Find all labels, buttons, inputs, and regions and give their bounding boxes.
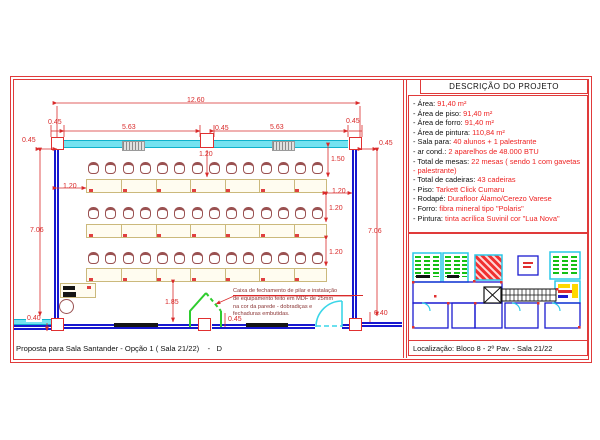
chair-symbol — [243, 252, 254, 264]
column — [198, 318, 211, 331]
furniture-code — [226, 189, 230, 192]
presenter-chair — [59, 299, 74, 314]
chair-symbol — [88, 162, 99, 174]
chair-symbol — [226, 252, 237, 264]
dimension-label: 0.45 — [215, 125, 229, 132]
cad-drawing-sheet: { "sheet": { "title_block": "Proposta pa… — [0, 0, 600, 440]
chair-symbol — [174, 207, 185, 219]
column — [200, 133, 214, 148]
dimension-label: 0.45 — [22, 137, 36, 144]
furniture-code — [87, 286, 91, 289]
description-item: - Área de pintura: 110,84 m² — [413, 128, 583, 137]
dimension-label: 1.20 — [329, 249, 343, 256]
description-item: - Área de forro: 91,40 m² — [413, 118, 583, 127]
chair-symbol — [261, 252, 272, 264]
chair-symbol — [209, 207, 220, 219]
chair-symbol — [312, 252, 323, 264]
description-header: DESCRIÇÃO DO PROJETO — [420, 79, 588, 94]
furniture-code — [261, 278, 265, 281]
furniture-code — [192, 189, 196, 192]
dimension-label: 1.50 — [331, 156, 345, 163]
sheet-title: Proposta para Sala Santander - Opção 1 (… — [16, 344, 222, 353]
chair-symbol — [209, 252, 220, 264]
chair-symbol — [88, 207, 99, 219]
dimension-label: 0.40 — [26, 315, 42, 322]
chair-symbol — [157, 207, 168, 219]
dimension-label: 0.45 — [346, 118, 360, 125]
chair-symbol — [209, 162, 220, 174]
chair-symbol — [243, 207, 254, 219]
furniture-code — [261, 234, 265, 237]
furniture-code — [89, 278, 93, 281]
description-item: - ar cond.: 2 aparelhos de 48.000 BTU — [413, 147, 583, 156]
dimension-label: 0.45 — [48, 119, 62, 126]
adjacent-wall — [14, 325, 51, 330]
column — [349, 137, 362, 150]
equipment-icon — [63, 292, 76, 297]
wall-board — [246, 323, 288, 327]
column — [349, 318, 362, 331]
description-item: - Total de cadeiras: 43 cadeiras — [413, 175, 583, 184]
panel-divider — [406, 79, 407, 358]
dimension-label: 1.20 — [329, 205, 343, 212]
chair-symbol — [295, 252, 306, 264]
furniture-code — [89, 234, 93, 237]
chair-symbol — [192, 207, 203, 219]
description-item: - Rodapé: Durafloor Álamo/Cerezo Varese — [413, 194, 583, 203]
chair-symbol — [157, 162, 168, 174]
furniture-code — [295, 278, 299, 281]
furniture-code — [192, 278, 196, 281]
chair-symbol — [174, 252, 185, 264]
dimension-label: 0.45 — [379, 140, 393, 147]
dimension-label: 0.40 — [373, 310, 389, 317]
furniture-code — [192, 234, 196, 237]
chair-symbol — [123, 252, 134, 264]
description-item: - Forro: fibra mineral tipo "Polaris" — [413, 204, 583, 213]
description-item: - Total de mesas: 22 mesas ( sendo 1 com… — [413, 157, 583, 175]
note-line: de equipamento feito em MDF de 25mm — [233, 296, 363, 303]
dimension-label: 1.85 — [164, 299, 180, 306]
air-conditioner-icon — [272, 141, 295, 151]
chair-symbol — [192, 252, 203, 264]
chair-symbol — [226, 162, 237, 174]
note-line: na cor da parede - dobradiças e — [233, 304, 363, 311]
chair-symbol — [105, 162, 116, 174]
chair-symbol — [140, 162, 151, 174]
furniture-code — [123, 278, 127, 281]
chair-symbol — [295, 207, 306, 219]
left-wall — [54, 150, 59, 318]
furniture-code — [295, 234, 299, 237]
furniture-code — [295, 189, 299, 192]
dimension-label: 5.63 — [122, 124, 136, 131]
furniture-code — [226, 278, 230, 281]
description-item: - Sala para: 40 alunos + 1 palestrante — [413, 137, 583, 146]
furniture-code — [226, 234, 230, 237]
dimension-label: 7.06 — [29, 227, 45, 234]
mdf-box-note: Caixa de fechamento de pilar e instalaçã… — [233, 288, 363, 319]
chair-symbol — [174, 162, 185, 174]
dimension-label: 1.20 — [331, 188, 347, 195]
dimension-label: 5.63 — [270, 124, 284, 131]
furniture-code — [89, 189, 93, 192]
furniture-code — [157, 234, 161, 237]
description-item: - Área: 91,40 m² — [413, 99, 583, 108]
chair-symbol — [278, 252, 289, 264]
description-item: - Piso: Tarkett Click Cumaru — [413, 185, 583, 194]
chair-symbol — [295, 162, 306, 174]
dimension-label: 12.60 — [187, 97, 205, 104]
furniture-code — [123, 189, 127, 192]
furniture-code — [123, 234, 127, 237]
furniture-code — [261, 189, 265, 192]
description-list: - Área: 91,40 m²- Área de piso: 91,40 m²… — [408, 95, 588, 233]
chair-symbol — [243, 162, 254, 174]
note-line: fechaduras embutidas. — [233, 311, 363, 318]
description-item: - Área de piso: 91,40 m² — [413, 109, 583, 118]
chair-symbol — [261, 207, 272, 219]
panel-divider — [403, 79, 404, 358]
chair-symbol — [123, 207, 134, 219]
dimension-label: 1.20 — [62, 183, 78, 190]
chair-symbol — [261, 162, 272, 174]
dimension-label: 1.20 — [199, 151, 213, 158]
table-row-band — [86, 224, 327, 238]
furniture-code — [157, 278, 161, 281]
chair-symbol — [192, 162, 203, 174]
chair-symbol — [140, 207, 151, 219]
location-map-box — [408, 233, 588, 356]
equipment-icon — [63, 286, 75, 290]
column — [51, 137, 64, 150]
chair-symbol — [140, 252, 151, 264]
caption-separator — [408, 340, 588, 341]
chair-symbol — [312, 207, 323, 219]
chair-symbol — [226, 207, 237, 219]
chair-symbol — [157, 252, 168, 264]
chair-symbol — [278, 162, 289, 174]
chair-symbol — [105, 252, 116, 264]
dimension-label: 7.06 — [367, 228, 383, 235]
furniture-code — [157, 189, 161, 192]
air-conditioner-icon — [122, 141, 145, 151]
chair-symbol — [88, 252, 99, 264]
description-item: - Pintura: tinta acrílica Suvinil cor "L… — [413, 214, 583, 223]
chair-symbol — [105, 207, 116, 219]
note-line: Caixa de fechamento de pilar e instalaçã… — [233, 288, 363, 296]
table-row-band — [86, 268, 327, 282]
adjacent-wall — [362, 322, 402, 327]
column — [51, 318, 64, 331]
chair-symbol — [312, 162, 323, 174]
chair-symbol — [123, 162, 134, 174]
wall-board — [114, 323, 158, 327]
chair-symbol — [278, 207, 289, 219]
table-row-band — [86, 179, 327, 193]
location-caption: Localização: Bloco 8 - 2º Pav. - Sala 21… — [413, 344, 552, 353]
